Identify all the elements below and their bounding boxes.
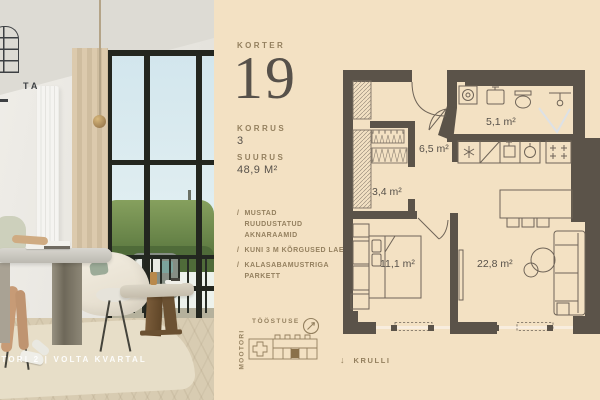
- korrus-label: KORRUS: [237, 124, 286, 133]
- nightstand: [353, 224, 369, 237]
- room-label-living: 22,8 m²: [477, 258, 513, 270]
- street-label-krulli: ↓ KRULLI: [340, 355, 391, 365]
- compass-icon: [302, 317, 320, 335]
- logo-fragment: [0, 99, 8, 102]
- coffee-table-top: [120, 283, 194, 299]
- pendant-lamp: [93, 115, 106, 128]
- down-arrow-icon: ↓: [340, 355, 345, 365]
- cabinet-icon: [480, 141, 500, 163]
- vase: [150, 272, 157, 285]
- suurus-label: SUURUS: [237, 153, 285, 162]
- kitchen-island: [500, 190, 572, 218]
- slash: /: [237, 208, 239, 241]
- desk-top: [0, 248, 112, 263]
- desk-base: [52, 263, 82, 345]
- feature-list: / MUSTAD RUUDUSTATUD AKNARAAMID / KUNI 3…: [237, 208, 357, 286]
- kitchen-units: [458, 141, 571, 163]
- window-transom: [106, 160, 214, 165]
- washing-machine-icon: [459, 86, 477, 104]
- shower-area: [539, 108, 570, 132]
- korrus-value: 3: [237, 135, 244, 147]
- pillow: [372, 240, 381, 252]
- apartment-number: 19: [233, 48, 297, 108]
- photo-caption: OTORI 2 | VOLTA KVARTAL: [0, 355, 214, 364]
- floor-plan: 6,5 m² 5,1 m² 3,4 m² 11,1 m² 22,8 m²: [343, 64, 600, 344]
- feature-text: KALASABAMUSTRIGA PARKETT: [244, 260, 329, 282]
- interior-photo: TA OTORI 2 | VOLTA KVARTAL: [0, 0, 214, 400]
- brochure-page: TA OTORI 2 | VOLTA KVARTAL KORTER 19 KOR…: [0, 0, 600, 400]
- person: [0, 216, 26, 252]
- living-furniture: [459, 190, 585, 315]
- nightstand: [351, 294, 369, 309]
- feature-item: / MUSTAD RUUDUSTATUD AKNARAAMID: [237, 208, 357, 241]
- kitchen-sink-icon: [504, 146, 515, 157]
- window-mullion: [196, 50, 202, 335]
- radiator: [37, 86, 59, 248]
- tv: [459, 250, 463, 300]
- curtain: [72, 48, 108, 270]
- window-frame-top: [106, 50, 214, 56]
- suurus-value: 48,9 M²: [237, 164, 278, 176]
- feature-item: / KUNI 3 M KÕRGUSED LAED: [237, 245, 357, 256]
- desk-base: [0, 263, 10, 343]
- room-label-bathroom: 5,1 m²: [486, 116, 516, 128]
- room-label-hallway: 6,5 m²: [419, 143, 449, 155]
- folder: [44, 246, 70, 249]
- room-label-bedroom: 11,1 m²: [380, 258, 415, 270]
- pendant-cord: [99, 0, 101, 118]
- coffee-table: [531, 248, 555, 272]
- site-plan: [247, 330, 321, 366]
- stool: [507, 218, 519, 227]
- hob-icon: [546, 141, 571, 163]
- stool: [522, 218, 534, 227]
- feature-text: MUSTAD RUUDUSTATUD AKNARAAMID: [244, 208, 302, 241]
- volta-window-logo-icon: [0, 26, 19, 73]
- logo-text: TA: [23, 81, 40, 91]
- sofa-pillow: [89, 261, 109, 276]
- sink-icon: [487, 90, 504, 104]
- walls: [343, 70, 600, 334]
- door-arcs: [412, 82, 448, 239]
- oven-icon: [525, 147, 536, 158]
- slash: /: [237, 260, 239, 282]
- stool: [537, 218, 549, 227]
- ottoman: [557, 303, 569, 315]
- street-label-toostuse: TÖÖSTUSE: [252, 318, 300, 325]
- fridge-snowflake-icon: [464, 146, 474, 158]
- shower-icon: [549, 93, 571, 100]
- slash: /: [237, 245, 239, 256]
- feature-text: KUNI 3 M KÕRGUSED LAED: [244, 245, 349, 256]
- toilet-icon: [516, 96, 531, 108]
- highlighted-unit: [291, 349, 299, 358]
- feature-item: / KALASABAMUSTRIGA PARKETT: [237, 260, 357, 282]
- tray-item: [171, 278, 180, 281]
- toilet-cistern-icon: [515, 91, 531, 95]
- room-label-wardrobe: 3,4 m²: [372, 186, 402, 198]
